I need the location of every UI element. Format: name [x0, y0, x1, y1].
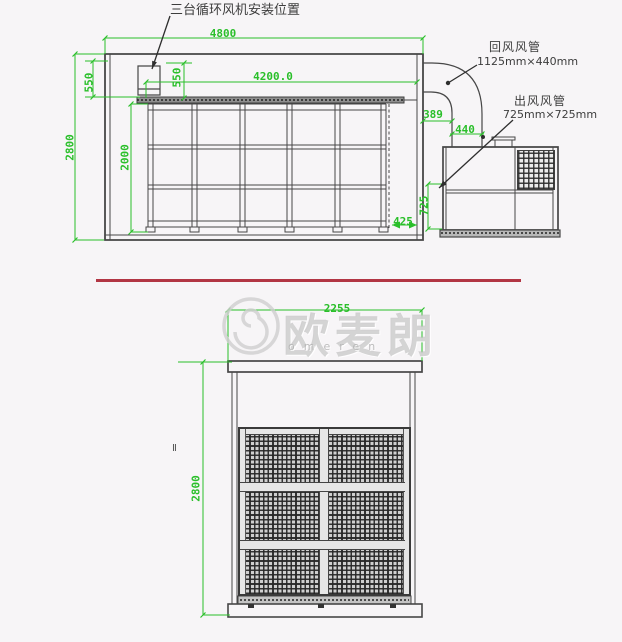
outlet-duct-size: 725mm×725mm	[503, 109, 597, 120]
dim-return-duct-width: 440	[443, 124, 487, 135]
mesh-horizontal-divider-1	[240, 482, 405, 492]
dim-duct-offset: 389	[411, 109, 455, 120]
mesh-left-margin	[240, 429, 246, 594]
watermark-brand-cn: 欧麦朗	[283, 300, 439, 366]
dim-ceiling-gap: 550	[172, 56, 183, 100]
return-duct-label: 回风风管	[489, 41, 541, 53]
return-duct-size: 1125mm×440mm	[477, 56, 578, 67]
dim-rack-span: 4200.0	[251, 71, 295, 82]
dim-fan-zone-height: 550	[84, 61, 95, 105]
outlet-duct-label: 出风风管	[514, 95, 566, 107]
cad-drawing-page: 三台循环风机安装位置 回风风管 1125mm×440mm 出风风管 725mm×…	[0, 0, 622, 642]
fan-position-label: 三台循环风机安装位置	[170, 4, 300, 17]
dim-room-height: 2800	[65, 126, 76, 170]
dim-overall-length: 4800	[201, 28, 245, 39]
red-divider-line	[96, 279, 521, 282]
mesh-horizontal-divider-2	[240, 540, 405, 550]
top-view-racks	[146, 104, 389, 232]
mesh-center-divider	[319, 429, 329, 594]
condenser-grille	[517, 150, 555, 190]
dim-end-gap: 425	[381, 216, 425, 227]
front-mesh-doors	[238, 427, 411, 596]
section-mark: Ⅱ	[172, 443, 177, 454]
watermark-logo-icon	[224, 299, 278, 353]
watermark-brand-en: omeren	[288, 340, 384, 353]
dim-front-height: 2800	[191, 467, 202, 511]
dim-rack-height: 2000	[120, 136, 131, 180]
mesh-right-margin	[403, 429, 409, 594]
